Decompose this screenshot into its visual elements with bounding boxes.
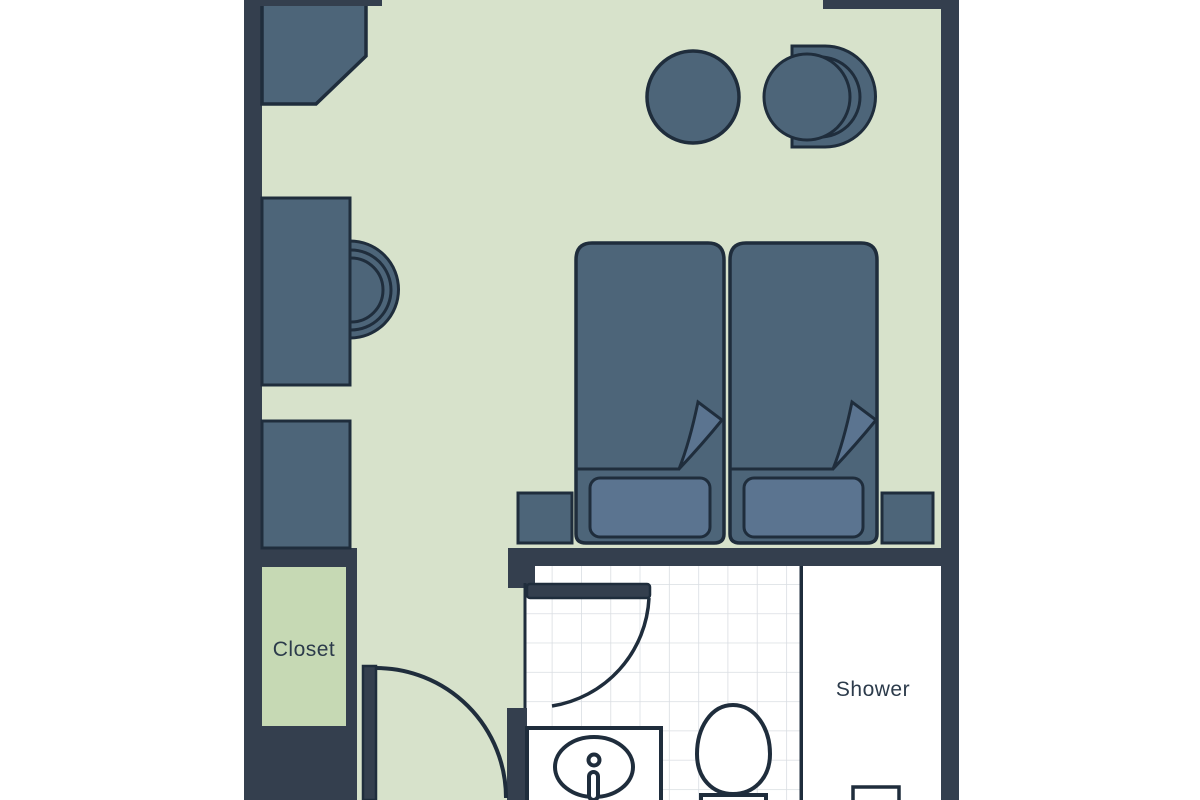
right-wall — [941, 0, 959, 800]
sink-drain — [589, 755, 600, 766]
shower-label: Shower — [836, 678, 910, 701]
shower-divider-wall — [800, 566, 804, 800]
pillow-left — [590, 478, 710, 537]
floor-plan: Closet — [0, 0, 1200, 800]
toilet-bowl — [697, 705, 770, 794]
bed-left — [576, 243, 724, 543]
round-table — [647, 51, 739, 143]
vanity-side-wall — [507, 708, 527, 800]
bed-right — [730, 243, 877, 543]
lounge-chair — [764, 46, 876, 147]
top-wall-left — [244, 0, 382, 6]
shower-fixture — [853, 787, 899, 800]
top-wall-right — [823, 0, 959, 9]
floor-plan-svg: Closet — [0, 0, 1200, 800]
bathroom-door-leaf — [527, 584, 650, 598]
nightstand-left — [518, 493, 572, 543]
bathroom-top-wall — [508, 548, 941, 566]
sink-faucet — [589, 772, 598, 800]
pillow-right — [744, 478, 863, 537]
bathroom-door-stub — [508, 548, 535, 588]
entry-door-leaf — [363, 666, 376, 800]
nightstand-right — [882, 493, 933, 543]
closet-label: Closet — [273, 638, 336, 661]
toilet — [697, 705, 770, 800]
sink-vanity — [527, 728, 661, 800]
desk — [262, 198, 350, 385]
dresser — [262, 421, 350, 548]
lounge-chair-seat — [764, 54, 850, 140]
